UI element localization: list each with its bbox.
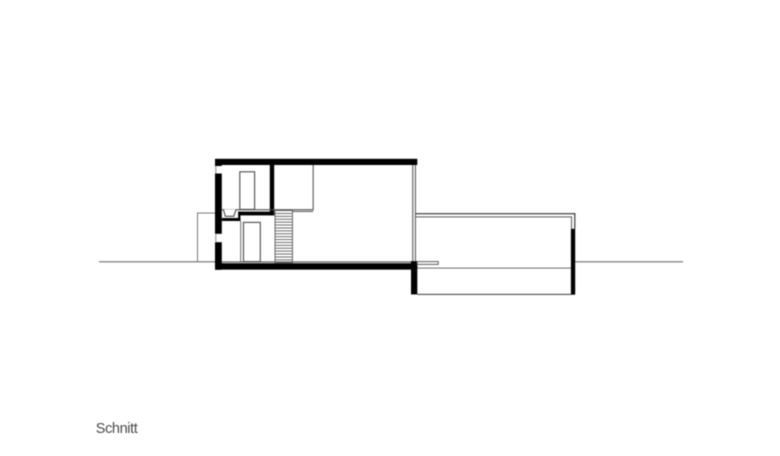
svg-text:Schnitt: Schnitt [96, 421, 138, 437]
